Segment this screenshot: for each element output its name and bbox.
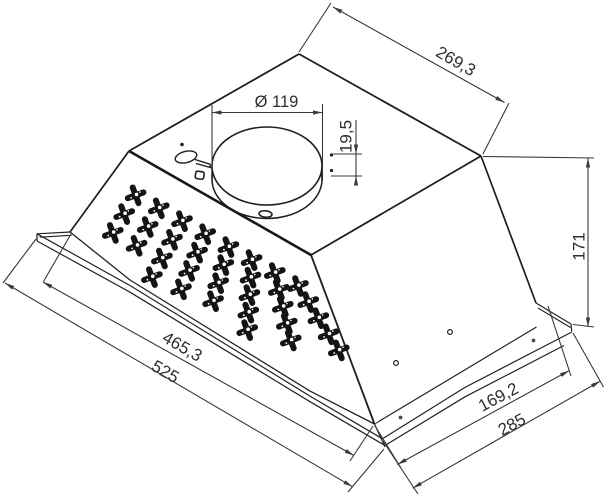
svg-text:171: 171 <box>570 232 589 260</box>
svg-text:19,5: 19,5 <box>337 120 356 153</box>
svg-text:Ø 119: Ø 119 <box>255 93 299 111</box>
